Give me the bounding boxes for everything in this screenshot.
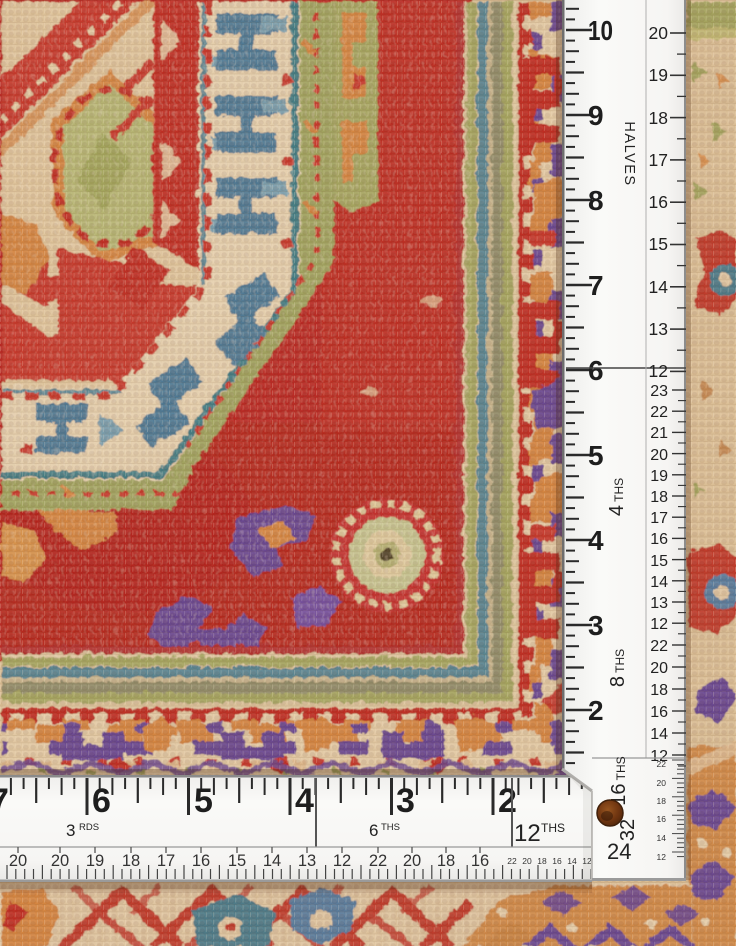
svg-text:13: 13	[649, 319, 668, 339]
svg-text:5: 5	[588, 440, 604, 471]
svg-text:THS: THS	[381, 822, 400, 833]
svg-text:12: 12	[650, 616, 668, 633]
svg-text:13: 13	[650, 595, 668, 612]
svg-text:20: 20	[657, 778, 667, 788]
svg-text:14: 14	[567, 856, 577, 866]
svg-text:16: 16	[471, 852, 489, 870]
svg-text:18: 18	[650, 682, 668, 699]
svg-text:22: 22	[507, 856, 517, 866]
svg-text:22: 22	[369, 852, 387, 870]
svg-text:20: 20	[51, 852, 69, 870]
svg-text:14: 14	[650, 574, 668, 591]
svg-text:20: 20	[650, 447, 668, 464]
svg-text:12: 12	[657, 852, 667, 862]
svg-text:20: 20	[649, 23, 669, 43]
svg-text:18: 18	[650, 489, 668, 506]
svg-text:22: 22	[650, 404, 668, 421]
svg-text:18: 18	[649, 108, 668, 128]
svg-text:12: 12	[333, 852, 351, 870]
svg-text:15: 15	[649, 234, 668, 254]
svg-text:7: 7	[0, 782, 9, 820]
svg-text:23: 23	[650, 383, 668, 400]
svg-text:32: 32	[617, 819, 639, 841]
svg-text:19: 19	[649, 65, 668, 85]
svg-text:14: 14	[649, 277, 669, 297]
svg-text:3: 3	[396, 782, 415, 820]
svg-text:5: 5	[194, 782, 213, 820]
svg-text:6: 6	[92, 782, 111, 820]
svg-text:20: 20	[9, 852, 27, 870]
svg-text:18: 18	[122, 852, 140, 870]
svg-text:18: 18	[657, 796, 667, 806]
svg-text:19: 19	[650, 468, 668, 485]
svg-text:RDS: RDS	[79, 822, 99, 833]
svg-text:10: 10	[588, 15, 613, 46]
svg-text:15: 15	[228, 852, 246, 870]
svg-text:THS: THS	[541, 821, 565, 835]
svg-text:17: 17	[157, 852, 175, 870]
svg-text:16: 16	[552, 856, 562, 866]
svg-text:16: 16	[650, 531, 668, 548]
svg-text:22: 22	[657, 759, 667, 769]
svg-text:4: 4	[295, 782, 314, 820]
svg-text:6: 6	[588, 355, 604, 386]
svg-text:12: 12	[514, 820, 541, 847]
svg-text:16: 16	[649, 192, 668, 212]
svg-text:4: 4	[588, 525, 604, 556]
svg-text:16: 16	[650, 704, 668, 721]
svg-text:2: 2	[498, 782, 517, 820]
svg-text:6: 6	[369, 821, 378, 840]
svg-text:3: 3	[588, 610, 604, 641]
svg-text:18: 18	[537, 856, 547, 866]
svg-text:HALVES: HALVES	[621, 121, 637, 186]
svg-text:24: 24	[607, 839, 631, 864]
svg-text:19: 19	[86, 852, 104, 870]
svg-text:14: 14	[657, 833, 667, 843]
svg-text:21: 21	[650, 425, 668, 442]
svg-text:16: 16	[657, 814, 667, 824]
svg-text:20: 20	[522, 856, 532, 866]
svg-text:3: 3	[66, 821, 75, 840]
svg-text:14: 14	[650, 726, 668, 743]
svg-text:12: 12	[649, 361, 668, 381]
svg-text:20: 20	[650, 660, 668, 677]
svg-text:8: 8	[588, 185, 604, 216]
svg-text:2: 2	[588, 695, 604, 726]
svg-text:18: 18	[437, 852, 455, 870]
svg-text:14: 14	[263, 852, 281, 870]
svg-text:17: 17	[650, 510, 668, 527]
svg-text:13: 13	[298, 852, 316, 870]
svg-text:7: 7	[588, 270, 604, 301]
svg-text:20: 20	[403, 852, 421, 870]
svg-text:17: 17	[649, 150, 668, 170]
svg-text:16: 16	[192, 852, 210, 870]
svg-text:9: 9	[588, 100, 604, 131]
svg-text:22: 22	[650, 638, 668, 655]
svg-text:15: 15	[650, 553, 668, 570]
